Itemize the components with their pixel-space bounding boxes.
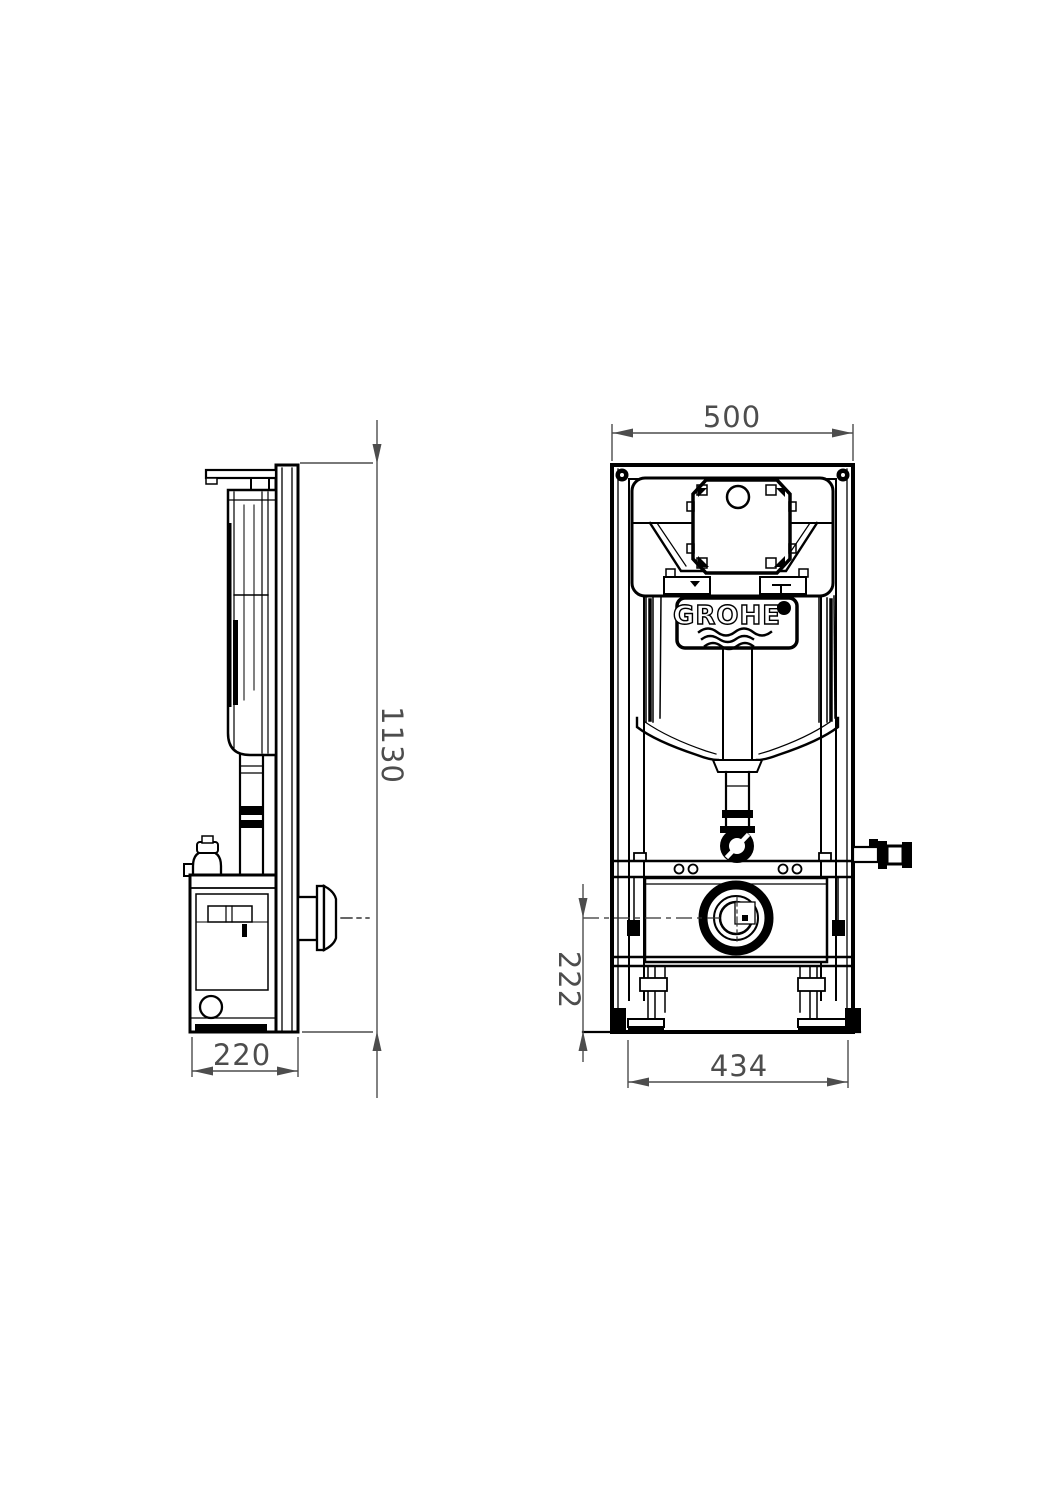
filler-hole-icon — [727, 486, 749, 508]
arrow-icon — [373, 444, 382, 464]
grohe-logo: GROHE — [673, 598, 797, 649]
anchor-hook-icon — [627, 920, 640, 936]
dimension-frame-height: 1130 — [300, 420, 409, 1098]
technical-drawing: GROHE — [0, 0, 1060, 1500]
drawing-page: GROHE — [0, 0, 1060, 1500]
front-view: GROHE — [583, 465, 912, 1032]
dimension-label-foot-spacing: 434 — [710, 1049, 768, 1083]
inspection-window — [687, 480, 796, 573]
dimension-label-outlet: 222 — [552, 951, 586, 1009]
drain-housing — [627, 877, 845, 962]
arrow-icon — [579, 1031, 588, 1051]
arrow-icon — [827, 1078, 847, 1087]
water-supply-fitting — [853, 839, 912, 869]
arrow-icon — [277, 1067, 297, 1076]
anchor-hook-icon — [832, 920, 845, 936]
dimension-frame-width: 500 — [612, 400, 853, 461]
side-view — [184, 465, 369, 1032]
flush-pipe-side — [239, 755, 264, 875]
dimension-label-height: 1130 — [375, 706, 409, 784]
arrow-icon — [579, 898, 588, 918]
dimension-frame-depth: 220 — [192, 1037, 298, 1077]
arrow-icon — [193, 1067, 213, 1076]
dimension-foot-spacing: 434 — [628, 1040, 848, 1088]
registered-dot-icon — [777, 601, 791, 615]
arrow-icon — [629, 1078, 649, 1087]
arrow-icon — [373, 1031, 382, 1051]
brand-text: GROHE — [673, 601, 781, 631]
arrow-icon — [832, 429, 852, 438]
dimension-label-width: 500 — [703, 400, 761, 434]
drain-bell-connector — [298, 886, 369, 950]
outlet-hole-side — [200, 996, 222, 1018]
cistern-side — [228, 490, 276, 755]
arrow-icon — [613, 429, 633, 438]
dimension-label-depth: 220 — [213, 1038, 271, 1072]
side-frame-rail — [276, 465, 298, 1032]
lower-housing-side — [190, 875, 276, 1032]
